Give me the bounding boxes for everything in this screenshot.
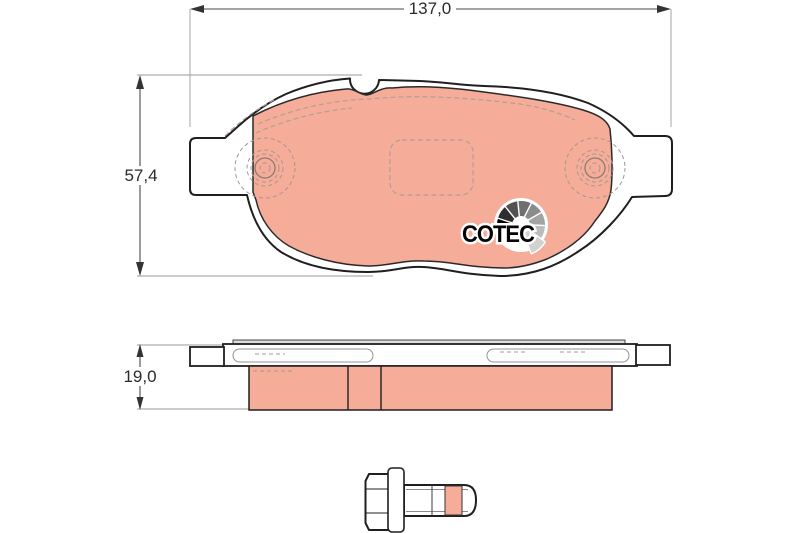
arrow-up-icon [136,75,144,89]
bolt-thread-marker [445,486,462,515]
side-left-ear-tab [190,347,224,366]
bolt-flange [388,468,404,532]
front-view: COTEC [190,79,672,277]
arrow-down-icon [136,262,144,276]
thickness-dimension-label: 19,0 [123,367,156,386]
side-view [190,340,670,410]
side-backing-plate [223,344,637,366]
height-dimension-label: 57,4 [124,166,157,185]
mounting-bolt [366,468,477,532]
bolt-head [366,474,390,530]
arrow-up-icon [137,344,144,357]
arrow-left-icon [190,5,204,13]
drawing-canvas: 137,0 57,4 [0,0,800,533]
side-friction-material [249,366,612,410]
side-right-ear-tab [636,345,670,365]
brake-pad-technical-drawing: 137,0 57,4 [0,0,800,533]
width-dimension-label: 137,0 [409,0,452,18]
cotec-logo-text: COTEC [462,221,535,248]
arrow-right-icon [657,5,671,13]
arrow-down-icon [137,397,144,410]
friction-material [253,87,612,268]
